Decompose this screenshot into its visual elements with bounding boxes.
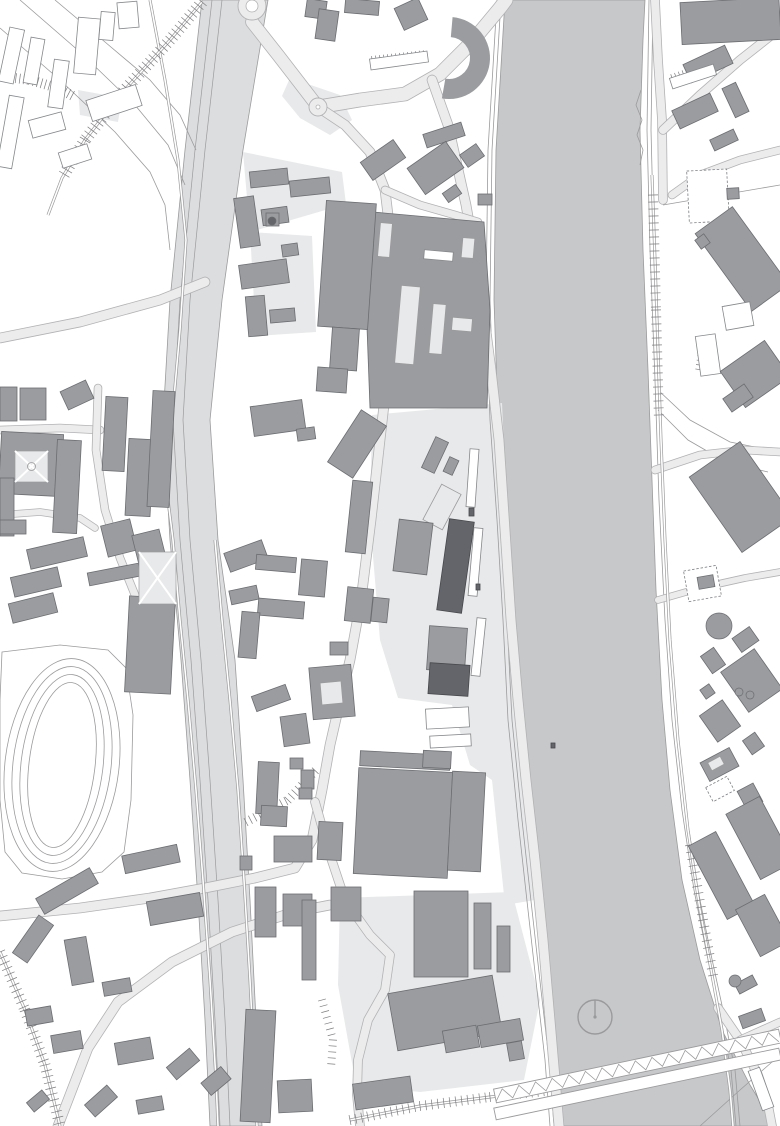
river-neckar bbox=[494, 0, 775, 1126]
site-plan-map bbox=[0, 0, 780, 1126]
site-plan-page bbox=[0, 0, 780, 1126]
sports-track bbox=[0, 645, 133, 879]
